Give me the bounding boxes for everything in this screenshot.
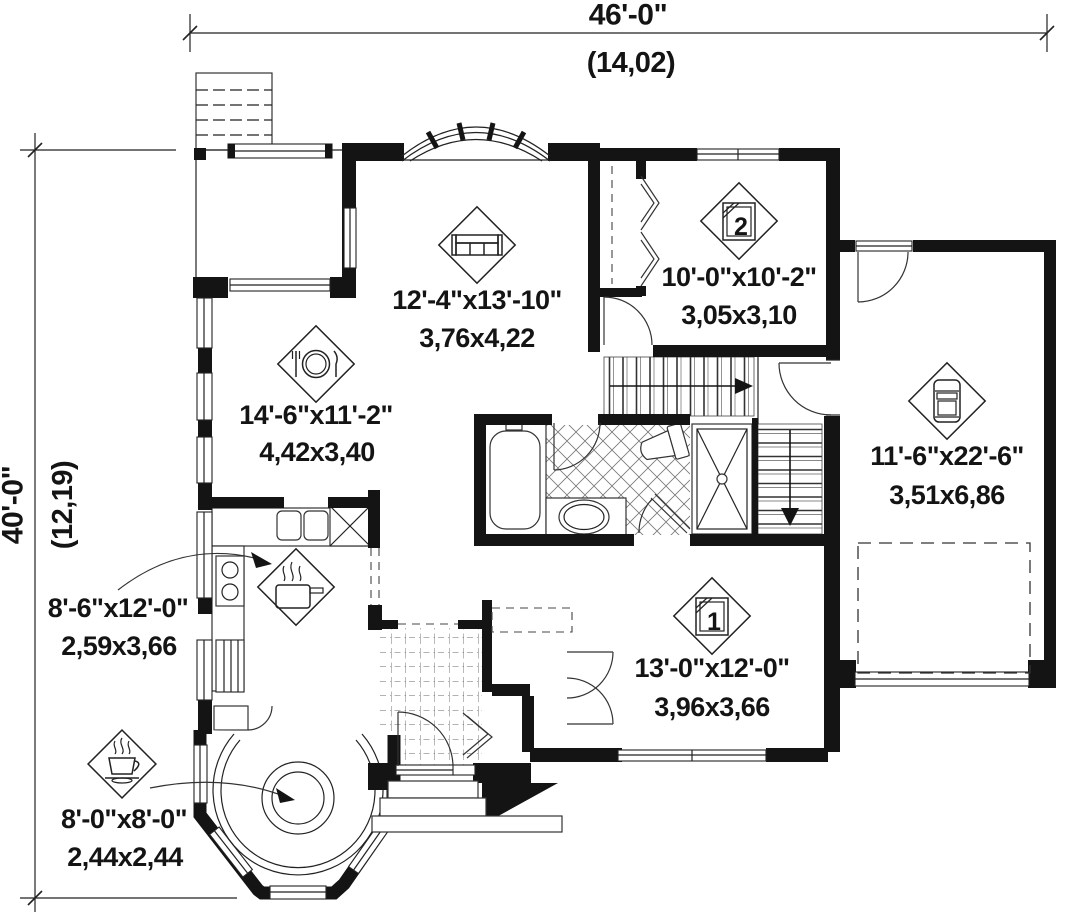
bed-icon: 2 [701,183,777,259]
porch-deck [196,144,342,277]
coffee-cup-icon [88,730,156,798]
bed-icon: 1 [674,578,750,654]
dining-room-size-metric: 4,42x3,40 [259,437,375,467]
dining-room-size-imperial: 14'-6"x11'-2" [239,400,393,430]
closet-french-doors [567,652,613,724]
floor-plan-canvas: 46'-0" (14,02) 40'-0" (12,19) [0,0,1080,916]
breakfast-size-metric: 2,44x2,44 [67,842,183,872]
top-dimension-feet: 46'-0" [589,0,667,32]
left-dimension-feet: 40'-0" [0,466,30,544]
garage-size-imperial: 11'-6"x22'-6" [870,441,1024,471]
bedroom2-size-metric: 3,05x3,10 [681,300,797,330]
cooking-pot-icon [258,549,334,625]
top-dimension-meters: (14,02) [587,47,675,79]
dining-plate-icon [278,326,354,402]
kitchen-fixtures [212,506,370,730]
bedroom2-size-imperial: 10'-0"x10'-2" [661,262,816,292]
breakfast-size-imperial: 8'-0"x8'-0" [61,804,187,834]
breakfast-turret [194,730,400,899]
arched-bay-window [402,123,550,161]
closet-shelf-outline [492,608,572,632]
living-room-size-imperial: 12'-4"x13'-10" [392,285,562,315]
kitchen-size-metric: 2,59x3,66 [61,631,177,661]
garage-size-metric: 3,51x6,86 [889,480,1005,510]
kitchen-size-imperial: 8'-6"x12'-0" [48,593,189,623]
bedroom2-bifold-doors [641,176,659,286]
bedroom1-size-metric: 3,96x3,66 [654,692,770,722]
car-icon [909,363,985,439]
garage-service-door [858,252,908,302]
front-steps-top [196,73,272,150]
sofa-icon [439,207,515,283]
bedroom2-number: 2 [734,213,748,241]
bedroom1-number: 1 [707,608,721,636]
bedroom2-door [604,297,652,345]
top-dimension: 46'-0" (14,02) [183,0,1054,79]
floor-plan-drawing: 46'-0" (14,02) 40'-0" (12,19) [0,0,1080,916]
bedroom1-size-imperial: 13'-0"x12'-0" [634,653,789,683]
left-dimension-meters: (12,19) [47,461,79,549]
living-room-size-metric: 3,76x4,22 [419,323,535,353]
kitchen-sink-icon [277,511,301,540]
garage-door-dashed-outline [858,543,1030,673]
stove-icon [216,556,244,606]
garage-access-door [779,360,840,415]
